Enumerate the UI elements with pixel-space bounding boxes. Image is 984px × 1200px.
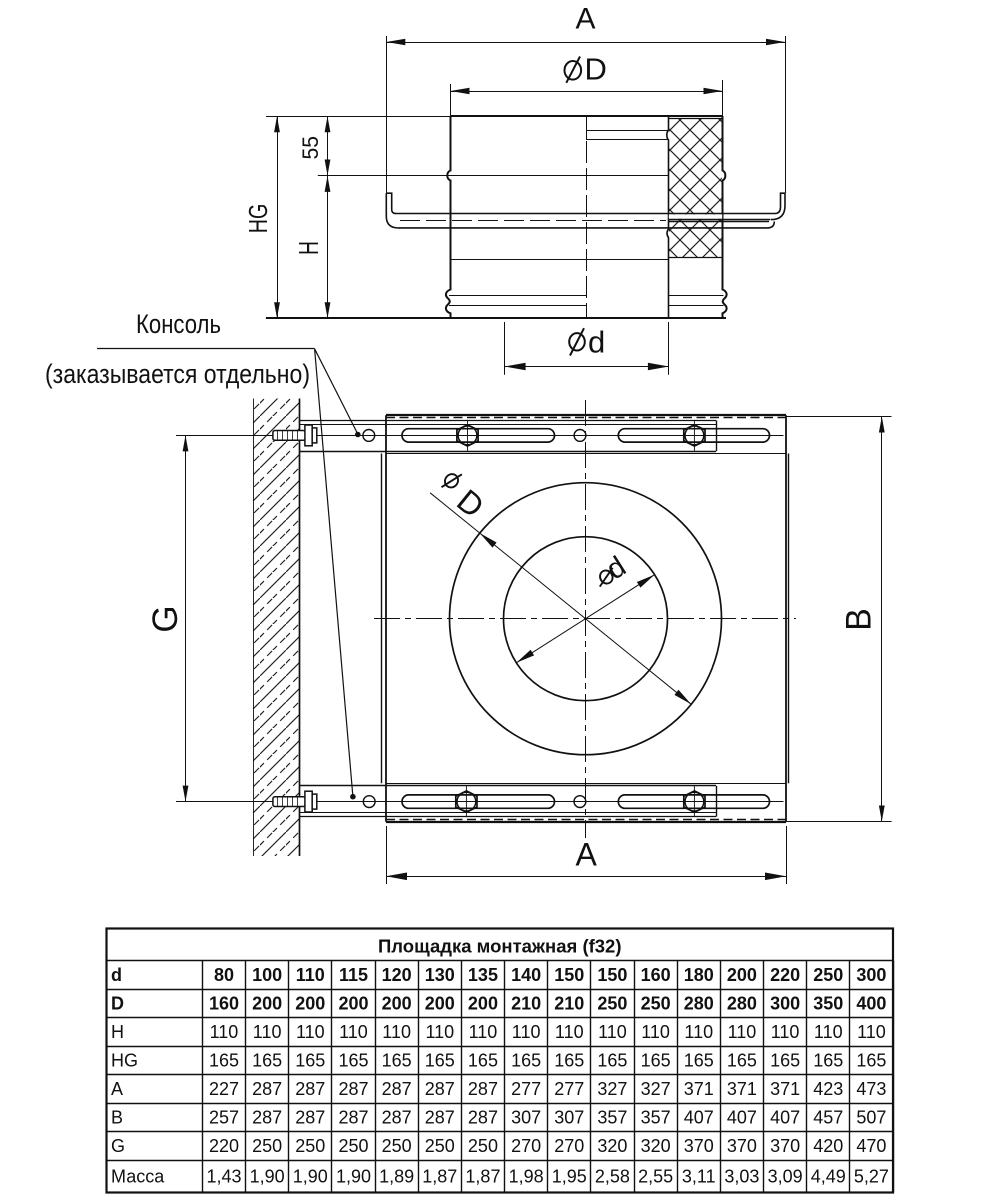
svg-text:357: 357: [641, 1108, 671, 1128]
svg-text:55: 55: [298, 136, 323, 160]
svg-text:327: 327: [597, 1079, 627, 1099]
svg-text:210: 210: [554, 994, 584, 1014]
svg-text:227: 227: [209, 1079, 239, 1099]
svg-text:270: 270: [511, 1136, 541, 1156]
svg-text:1,95: 1,95: [552, 1167, 587, 1187]
svg-text:287: 287: [338, 1079, 368, 1099]
svg-text:110: 110: [684, 1022, 713, 1042]
svg-text:423: 423: [813, 1079, 843, 1099]
svg-text:H: H: [293, 241, 324, 255]
svg-text:250: 250: [597, 994, 627, 1014]
svg-text:165: 165: [468, 1051, 498, 1071]
svg-text:407: 407: [684, 1108, 714, 1128]
svg-text:270: 270: [554, 1136, 584, 1156]
svg-text:HG: HG: [245, 204, 273, 234]
svg-text:370: 370: [684, 1136, 714, 1156]
svg-text:200: 200: [338, 994, 368, 1014]
svg-text:3,03: 3,03: [724, 1167, 759, 1187]
svg-text:Консоль: Консоль: [136, 309, 221, 339]
svg-text:287: 287: [468, 1079, 498, 1099]
svg-text:287: 287: [425, 1079, 455, 1099]
svg-text:G: G: [111, 1136, 125, 1156]
svg-text:110: 110: [296, 965, 325, 985]
svg-text:d: d: [588, 325, 605, 360]
svg-text:1,90: 1,90: [250, 1167, 285, 1187]
svg-text:1,87: 1,87: [465, 1167, 500, 1187]
svg-text:80: 80: [214, 965, 234, 985]
svg-text:140: 140: [511, 965, 541, 985]
svg-text:165: 165: [554, 1051, 584, 1071]
svg-text:307: 307: [554, 1108, 584, 1128]
svg-text:287: 287: [382, 1079, 412, 1099]
svg-text:165: 165: [338, 1051, 368, 1071]
svg-text:Площадка монтажная (f32): Площадка монтажная (f32): [378, 936, 622, 957]
svg-text:D: D: [111, 994, 124, 1014]
svg-text:A: A: [576, 837, 598, 873]
svg-text:250: 250: [468, 1136, 498, 1156]
svg-text:165: 165: [425, 1051, 455, 1071]
svg-text:A: A: [111, 1079, 123, 1099]
svg-text:150: 150: [597, 965, 627, 985]
svg-text:(заказывается отдельно): (заказывается отдельно): [45, 359, 310, 389]
svg-text:110: 110: [382, 1022, 411, 1042]
svg-text:110: 110: [728, 1022, 757, 1042]
svg-text:165: 165: [727, 1051, 757, 1071]
svg-text:110: 110: [339, 1022, 368, 1042]
svg-text:Масса: Масса: [111, 1167, 165, 1187]
svg-text:115: 115: [339, 965, 368, 985]
svg-text:165: 165: [813, 1051, 843, 1071]
svg-text:165: 165: [597, 1051, 627, 1071]
svg-text:200: 200: [382, 994, 412, 1014]
svg-text:220: 220: [209, 1136, 239, 1156]
svg-text:110: 110: [857, 1022, 886, 1042]
svg-text:407: 407: [770, 1108, 800, 1128]
svg-text:2,55: 2,55: [638, 1167, 673, 1187]
svg-text:371: 371: [770, 1079, 800, 1099]
svg-text:200: 200: [295, 994, 325, 1014]
svg-text:287: 287: [252, 1108, 282, 1128]
svg-text:420: 420: [813, 1136, 843, 1156]
svg-text:d: d: [111, 965, 122, 985]
svg-text:4,49: 4,49: [811, 1167, 846, 1187]
svg-text:165: 165: [295, 1051, 325, 1071]
svg-text:357: 357: [597, 1108, 627, 1128]
svg-text:280: 280: [727, 994, 757, 1014]
svg-text:350: 350: [813, 994, 843, 1014]
svg-text:D: D: [585, 52, 607, 87]
svg-text:307: 307: [511, 1108, 541, 1128]
svg-text:250: 250: [641, 994, 671, 1014]
svg-text:165: 165: [856, 1051, 886, 1071]
svg-text:287: 287: [382, 1108, 412, 1128]
svg-text:165: 165: [209, 1051, 239, 1071]
svg-text:110: 110: [296, 1022, 325, 1042]
svg-text:287: 287: [295, 1079, 325, 1099]
svg-text:280: 280: [684, 994, 714, 1014]
svg-text:300: 300: [770, 994, 800, 1014]
svg-text:250: 250: [382, 1136, 412, 1156]
svg-text:110: 110: [641, 1022, 670, 1042]
svg-text:200: 200: [252, 994, 282, 1014]
svg-text:287: 287: [338, 1108, 368, 1128]
svg-text:287: 287: [295, 1108, 325, 1128]
svg-text:165: 165: [252, 1051, 282, 1071]
svg-text:A: A: [575, 3, 595, 36]
svg-text:3,09: 3,09: [768, 1167, 803, 1187]
svg-text:165: 165: [511, 1051, 541, 1071]
svg-text:110: 110: [771, 1022, 800, 1042]
svg-text:327: 327: [641, 1079, 671, 1099]
svg-text:1,98: 1,98: [509, 1167, 544, 1187]
svg-text:B: B: [111, 1108, 123, 1128]
svg-text:3,11: 3,11: [682, 1167, 716, 1187]
svg-text:287: 287: [425, 1108, 455, 1128]
svg-text:165: 165: [770, 1051, 800, 1071]
svg-text:370: 370: [770, 1136, 800, 1156]
svg-text:135: 135: [468, 965, 498, 985]
svg-text:110: 110: [253, 1022, 282, 1042]
svg-text:B: B: [840, 608, 879, 631]
svg-text:110: 110: [598, 1022, 627, 1042]
svg-text:300: 300: [856, 965, 886, 985]
svg-text:250: 250: [813, 965, 843, 985]
svg-text:120: 120: [382, 965, 412, 985]
svg-text:1,43: 1,43: [206, 1167, 241, 1187]
svg-text:180: 180: [684, 965, 714, 985]
svg-text:165: 165: [641, 1051, 671, 1071]
svg-text:5,27: 5,27: [854, 1167, 889, 1187]
svg-text:220: 220: [770, 965, 800, 985]
svg-text:371: 371: [727, 1079, 757, 1099]
svg-text:130: 130: [425, 965, 455, 985]
svg-text:320: 320: [597, 1136, 627, 1156]
svg-text:473: 473: [856, 1079, 886, 1099]
svg-text:165: 165: [382, 1051, 412, 1071]
svg-text:150: 150: [554, 965, 584, 985]
svg-text:110: 110: [210, 1022, 239, 1042]
svg-text:210: 210: [511, 994, 541, 1014]
svg-text:1,87: 1,87: [422, 1167, 457, 1187]
svg-text:507: 507: [856, 1108, 886, 1128]
svg-text:370: 370: [727, 1136, 757, 1156]
svg-text:400: 400: [856, 994, 886, 1014]
svg-text:277: 277: [511, 1079, 541, 1099]
svg-text:250: 250: [425, 1136, 455, 1156]
svg-text:200: 200: [727, 965, 757, 985]
svg-text:110: 110: [425, 1022, 454, 1042]
svg-text:2,58: 2,58: [595, 1167, 630, 1187]
svg-text:110: 110: [512, 1022, 541, 1042]
svg-text:110: 110: [469, 1022, 498, 1042]
svg-text:371: 371: [684, 1079, 714, 1099]
svg-text:250: 250: [295, 1136, 325, 1156]
svg-text:250: 250: [338, 1136, 368, 1156]
svg-text:1,90: 1,90: [293, 1167, 328, 1187]
svg-text:160: 160: [209, 994, 239, 1014]
svg-text:110: 110: [814, 1022, 843, 1042]
svg-text:H: H: [111, 1022, 124, 1042]
svg-text:287: 287: [252, 1079, 282, 1099]
svg-text:165: 165: [684, 1051, 714, 1071]
svg-text:200: 200: [468, 994, 498, 1014]
svg-text:470: 470: [856, 1136, 886, 1156]
svg-text:257: 257: [209, 1108, 239, 1128]
svg-text:100: 100: [252, 965, 282, 985]
svg-text:250: 250: [252, 1136, 282, 1156]
svg-text:407: 407: [727, 1108, 757, 1128]
svg-text:277: 277: [554, 1079, 584, 1099]
svg-text:HG: HG: [111, 1051, 138, 1071]
svg-text:287: 287: [468, 1108, 498, 1128]
svg-text:1,89: 1,89: [379, 1167, 414, 1187]
svg-text:110: 110: [555, 1022, 584, 1042]
svg-text:1,90: 1,90: [336, 1167, 371, 1187]
svg-text:160: 160: [641, 965, 671, 985]
svg-text:320: 320: [641, 1136, 671, 1156]
svg-text:G: G: [146, 605, 185, 632]
svg-text:200: 200: [425, 994, 455, 1014]
svg-text:457: 457: [813, 1108, 843, 1128]
